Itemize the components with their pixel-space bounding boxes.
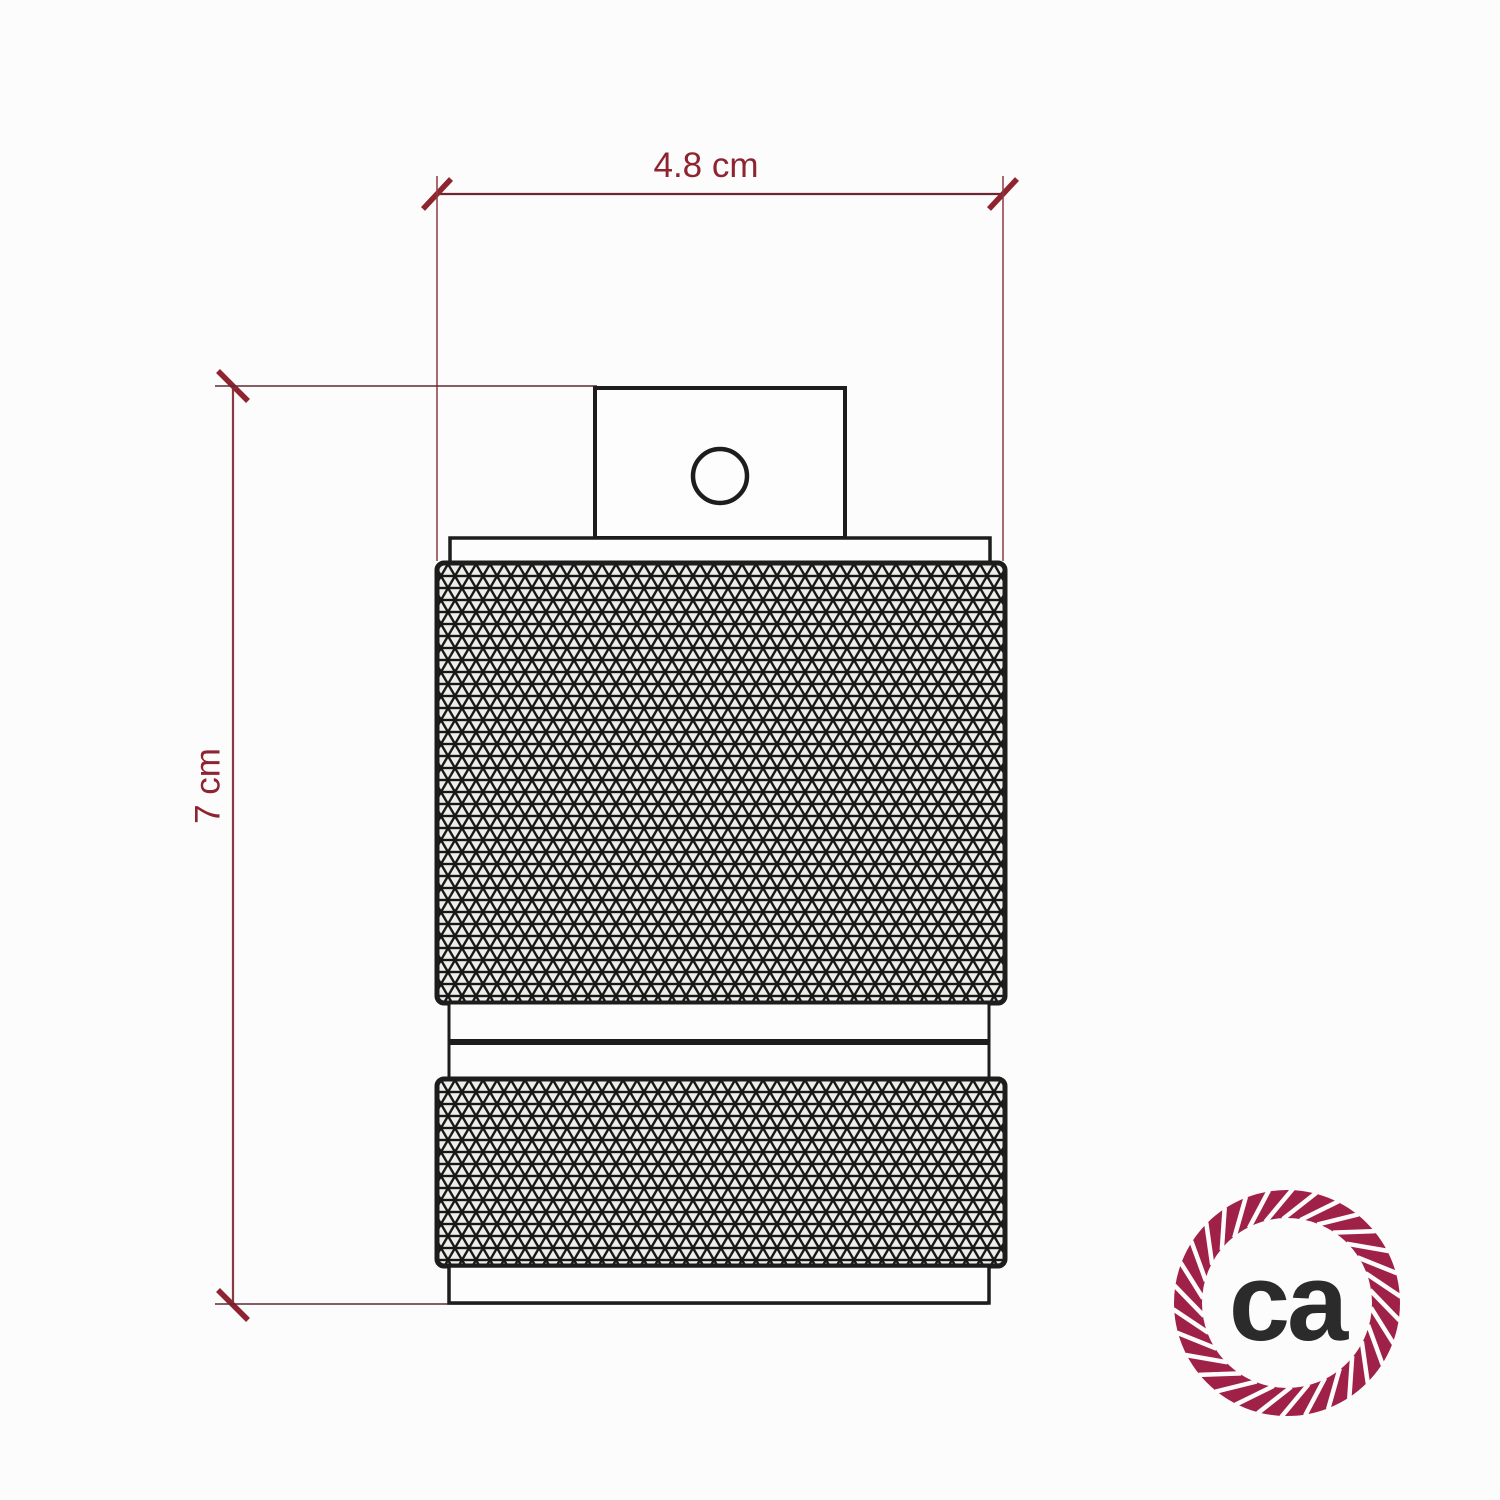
technical-drawing-canvas: 4.8 cm 7 cm ca — [0, 0, 1500, 1500]
rope-twist-gap — [1222, 1208, 1225, 1251]
knurled-lower-ring — [437, 1079, 1005, 1266]
rope-twist-gap — [1349, 1356, 1352, 1399]
width-dimension-label: 4.8 cm — [653, 148, 758, 183]
lamp-holder-outline — [437, 388, 1005, 1303]
smooth-ring-lower — [449, 1042, 989, 1079]
knurled-upper-body — [437, 563, 1005, 1003]
logo-text: ca — [1229, 1248, 1345, 1358]
top-cap-plate — [450, 538, 990, 563]
smooth-ring-upper — [449, 1003, 989, 1042]
cable-entry-hole — [693, 449, 747, 503]
rope-twist-gap — [1199, 1373, 1242, 1375]
rope-twist-gap — [1333, 1231, 1376, 1233]
height-dimension-label: 7 cm — [191, 748, 226, 824]
bottom-cap-plate — [449, 1266, 989, 1303]
